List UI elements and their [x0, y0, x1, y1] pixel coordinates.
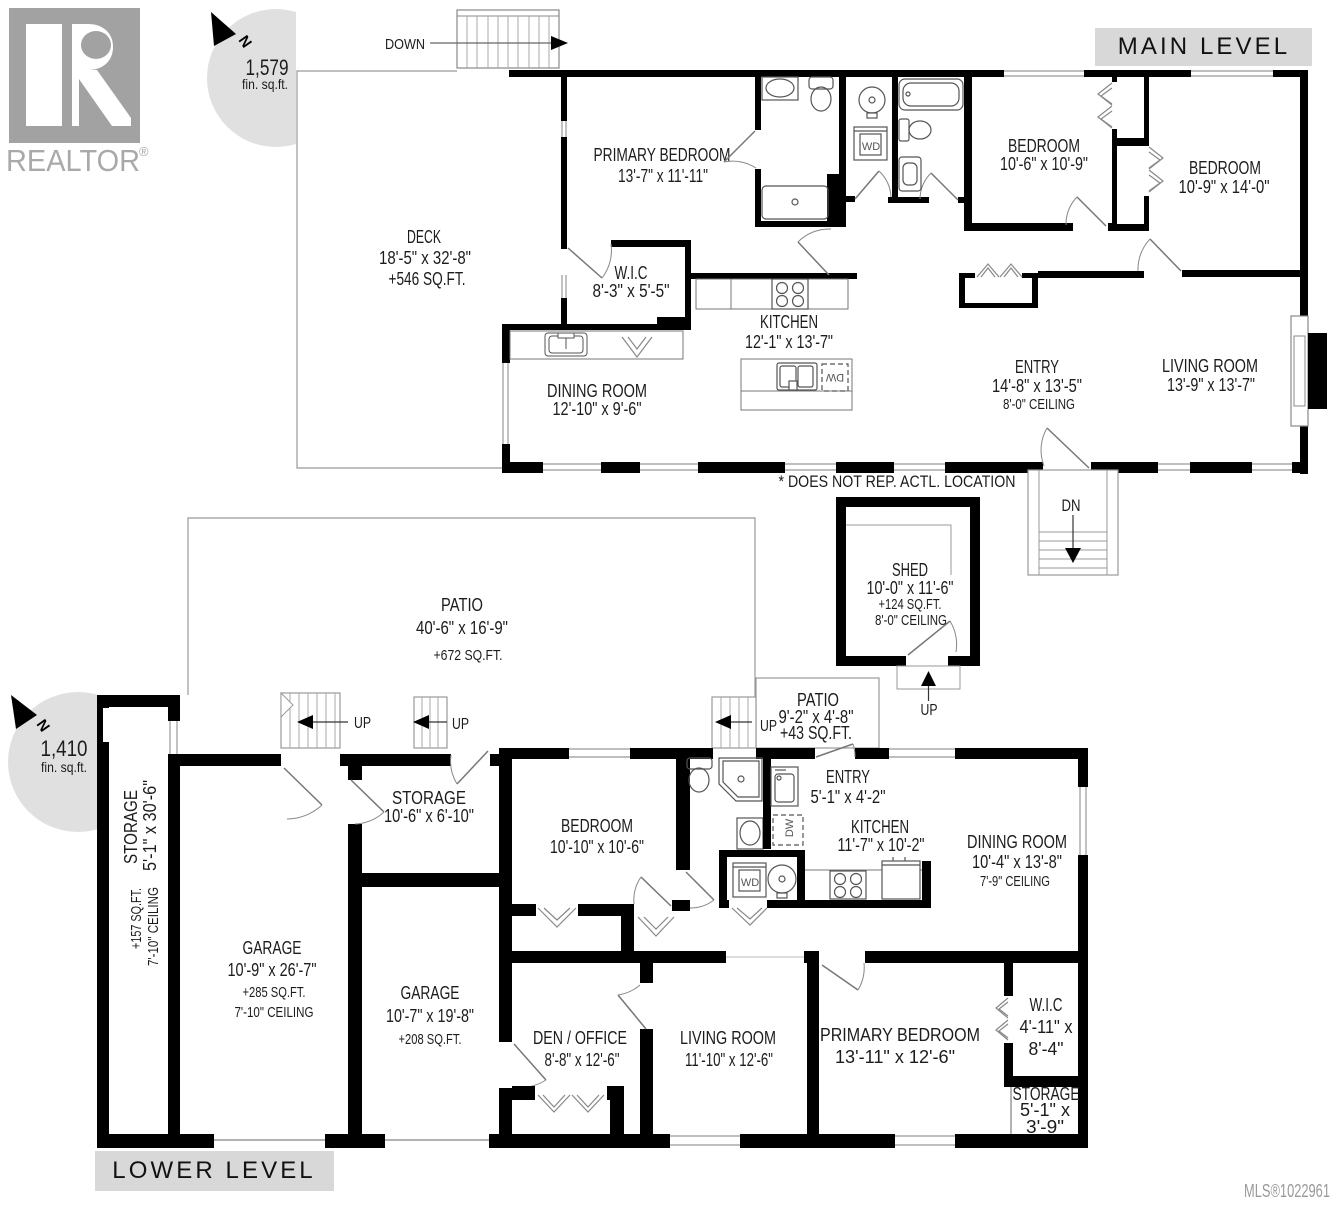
svg-text:10'-9" x 14'-0": 10'-9" x 14'-0": [1179, 177, 1270, 197]
svg-text:10'-9" x 26'-7": 10'-9" x 26'-7": [228, 960, 317, 980]
svg-text:40'-6" x 16'-9": 40'-6" x 16'-9": [416, 618, 508, 638]
svg-text:14'-8" x 13'-5": 14'-8" x 13'-5": [992, 376, 1082, 396]
svg-text:+672 SQ.FT.: +672 SQ.FT.: [434, 647, 503, 664]
svg-text:DINING ROOM: DINING ROOM: [967, 832, 1067, 852]
svg-text:LOWER LEVEL: LOWER LEVEL: [112, 1157, 316, 1184]
svg-text:7'-9" CEILING: 7'-9" CEILING: [980, 873, 1050, 890]
svg-text:fin. sq.ft.: fin. sq.ft.: [242, 76, 288, 92]
svg-text:DECK: DECK: [407, 227, 441, 247]
svg-text:STORAGE: STORAGE: [121, 790, 141, 864]
svg-text:5'-1" x 4'-2": 5'-1" x 4'-2": [811, 787, 886, 807]
svg-text:3'-9": 3'-9": [1026, 1117, 1064, 1137]
svg-text:DW: DW: [784, 818, 796, 837]
svg-text:ENTRY: ENTRY: [1015, 357, 1059, 377]
svg-text:SHED: SHED: [892, 560, 928, 580]
svg-text:ENTRY: ENTRY: [826, 767, 870, 787]
svg-text:MLS®1022961: MLS®1022961: [1244, 1181, 1330, 1200]
svg-text:10'-6" x 6'-10": 10'-6" x 6'-10": [384, 806, 474, 826]
svg-text:GARAGE: GARAGE: [243, 938, 302, 958]
svg-text:10'-10" x 10'-6": 10'-10" x 10'-6": [550, 837, 644, 857]
svg-text:PRIMARY BEDROOM: PRIMARY BEDROOM: [820, 1025, 980, 1045]
svg-text:+208 SQ.FT.: +208 SQ.FT.: [399, 1031, 462, 1048]
svg-text:WD: WD: [862, 141, 880, 153]
svg-text:8'-4": 8'-4": [1029, 1039, 1064, 1059]
svg-text:BEDROOM: BEDROOM: [1189, 158, 1261, 178]
svg-text:+43 SQ.FT.: +43 SQ.FT.: [780, 723, 852, 743]
svg-text:STORAGE: STORAGE: [392, 788, 466, 808]
svg-text:13'-11" x 12'-6": 13'-11" x 12'-6": [835, 1047, 955, 1067]
svg-text:BEDROOM: BEDROOM: [1008, 136, 1080, 156]
svg-text:DOWN: DOWN: [385, 36, 425, 53]
svg-text:10'-6" x 10'-9": 10'-6" x 10'-9": [1000, 154, 1088, 174]
svg-text:8'-8" x 12'-6": 8'-8" x 12'-6": [545, 1050, 620, 1070]
svg-text:4'-11" x: 4'-11" x: [1020, 1017, 1073, 1037]
svg-text:DW: DW: [825, 371, 844, 383]
svg-text:18'-5" x 32'-8": 18'-5" x 32'-8": [379, 248, 471, 268]
svg-text:LIVING ROOM: LIVING ROOM: [680, 1028, 776, 1048]
svg-text:MAIN LEVEL: MAIN LEVEL: [1118, 33, 1290, 60]
svg-text:1,410: 1,410: [41, 736, 88, 761]
svg-text:LIVING ROOM: LIVING ROOM: [1162, 356, 1258, 376]
svg-text:11'-10" x 12'-6": 11'-10" x 12'-6": [685, 1050, 773, 1070]
svg-text:fin. sq.ft.: fin. sq.ft.: [41, 759, 87, 775]
svg-text:+546 SQ.FT.: +546 SQ.FT.: [389, 269, 466, 289]
svg-text:10'-7" x 19'-8": 10'-7" x 19'-8": [386, 1006, 474, 1026]
svg-text:W.I.C: W.I.C: [615, 263, 648, 283]
svg-text:7'-10" CEILING: 7'-10" CEILING: [235, 1004, 314, 1021]
svg-text:DEN / OFFICE: DEN / OFFICE: [533, 1028, 627, 1048]
svg-text:12'-10" x 9'-6": 12'-10" x 9'-6": [553, 399, 642, 419]
svg-text:REALTOR: REALTOR: [6, 143, 140, 178]
svg-text:7'-10" CEILING: 7'-10" CEILING: [145, 887, 162, 966]
svg-text:* DOES NOT REP. ACTL. LOCATION: * DOES NOT REP. ACTL. LOCATION: [779, 472, 1016, 491]
svg-text:10'-4" x 13'-8": 10'-4" x 13'-8": [972, 852, 1062, 872]
svg-text:13'-7" x 11'-11": 13'-7" x 11'-11": [618, 166, 708, 186]
svg-text:12'-1" x 13'-7": 12'-1" x 13'-7": [745, 332, 833, 352]
svg-text:+124 SQ.FT.: +124 SQ.FT.: [879, 596, 942, 613]
svg-text:5'-1" x 30'-6": 5'-1" x 30'-6": [140, 780, 160, 871]
svg-text:GARAGE: GARAGE: [401, 983, 460, 1003]
svg-text:8'-0" CEILING: 8'-0" CEILING: [1003, 396, 1075, 413]
svg-text:DINING ROOM: DINING ROOM: [547, 381, 647, 401]
svg-text:8'-0" CEILING: 8'-0" CEILING: [875, 612, 947, 629]
svg-text:KITCHEN: KITCHEN: [760, 312, 818, 332]
svg-text:W.I.C: W.I.C: [1030, 995, 1063, 1015]
svg-text:PATIO: PATIO: [441, 595, 483, 615]
svg-text:®: ®: [139, 144, 149, 159]
svg-text:8'-3" x 5'-5": 8'-3" x 5'-5": [593, 281, 670, 301]
svg-text:11'-7" x 10'-2": 11'-7" x 10'-2": [838, 835, 925, 855]
svg-text:PRIMARY BEDROOM: PRIMARY BEDROOM: [594, 145, 731, 165]
svg-text:KITCHEN: KITCHEN: [851, 817, 909, 837]
svg-text:+157 SQ.FT.: +157 SQ.FT.: [128, 888, 145, 949]
svg-text:UP: UP: [452, 716, 469, 733]
svg-text:DN: DN: [1062, 496, 1081, 515]
svg-text:BEDROOM: BEDROOM: [561, 816, 633, 836]
svg-text:UP: UP: [354, 715, 371, 732]
svg-text:WD: WD: [741, 877, 759, 889]
svg-text:+285 SQ.FT.: +285 SQ.FT.: [243, 984, 306, 1001]
svg-text:13'-9" x 13'-7": 13'-9" x 13'-7": [1167, 375, 1255, 395]
svg-text:UP: UP: [921, 702, 938, 719]
svg-text:UP: UP: [760, 718, 777, 735]
svg-text:10'-0" x 11'-6": 10'-0" x 11'-6": [867, 578, 954, 598]
